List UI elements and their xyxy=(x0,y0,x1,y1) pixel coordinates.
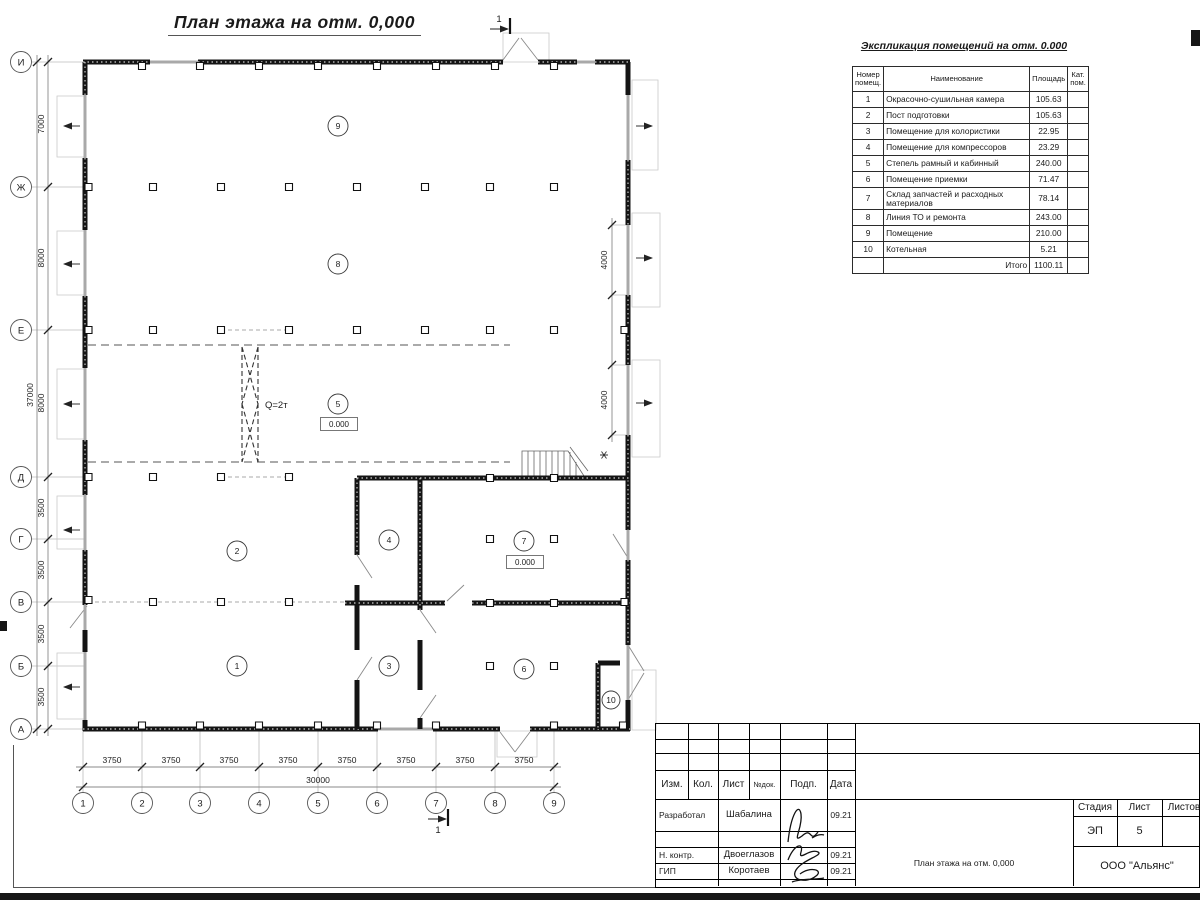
dim-bottom: 3750 xyxy=(515,755,534,765)
crane-capacity-label: Q=2т xyxy=(265,400,288,411)
cell-cat xyxy=(1068,242,1089,258)
tb-name: Двоеглазов xyxy=(718,847,780,863)
tb-col-izm: Изм. xyxy=(656,770,688,799)
table-row: 5 Степель рамный и кабинный 240.00 xyxy=(853,156,1089,172)
axis-row-label: В xyxy=(18,597,24,608)
cell-area: 210.00 xyxy=(1030,226,1068,242)
asterisk-symbol xyxy=(600,452,608,459)
dim-bottom: 3750 xyxy=(279,755,298,765)
room-number: 1 xyxy=(235,661,240,671)
crane-symbol xyxy=(242,347,258,462)
stairs xyxy=(522,447,588,476)
cell-area: 71.47 xyxy=(1030,172,1068,188)
dashed-lines xyxy=(88,330,510,602)
explication-header-row: Номер помещ. Наименование Площадь Кат. п… xyxy=(853,67,1089,92)
cell-cat xyxy=(1068,156,1089,172)
cell-area: 240.00 xyxy=(1030,156,1068,172)
dim-left: 7000 xyxy=(36,114,46,133)
cell-name: Пост подготовки xyxy=(884,108,1030,124)
dim-left: 3500 xyxy=(36,560,46,579)
sheet-frame-bottom xyxy=(13,887,655,888)
col-header-num: Номер помещ. xyxy=(853,67,884,92)
cell-num: 4 xyxy=(853,140,884,156)
room-number: 5 xyxy=(336,399,341,409)
dim-left-total: 37000 xyxy=(25,383,35,407)
scan-mark-right xyxy=(1191,30,1200,46)
table-row: 9 Помещение 210.00 xyxy=(853,226,1089,242)
elevation-value: 0.000 xyxy=(515,558,536,567)
axis-col-label: 1 xyxy=(80,798,85,809)
axis-col-label: 6 xyxy=(374,798,379,809)
axis-col-label: 3 xyxy=(197,798,202,809)
axis-row-label: Д xyxy=(18,472,25,483)
cell-cat xyxy=(1068,172,1089,188)
cell-area: 23.29 xyxy=(1030,140,1068,156)
cell-num: 2 xyxy=(853,108,884,124)
cell-name: Помещение xyxy=(884,226,1030,242)
section-label: 1 xyxy=(435,825,440,836)
axis-col-label: 7 xyxy=(433,798,438,809)
tb-stage-value: ЭП xyxy=(1073,816,1117,846)
dim-left: 3500 xyxy=(36,687,46,706)
table-row: 10 Котельная 5.21 xyxy=(853,242,1089,258)
elevation-marks: 0.000 0.000 xyxy=(321,418,544,569)
cell-name: Степель рамный и кабинный xyxy=(884,156,1030,172)
cell-num: 6 xyxy=(853,172,884,188)
axis-col-label: 9 xyxy=(551,798,556,809)
cell-num: 8 xyxy=(853,210,884,226)
cell-num: 1 xyxy=(853,92,884,108)
tb-sheet-value: 5 xyxy=(1117,816,1162,846)
axis-row-label: А xyxy=(18,724,25,735)
cell-area: 5.21 xyxy=(1030,242,1068,258)
table-row: 1 Окрасочно-сушильная камера 105.63 xyxy=(853,92,1089,108)
tb-doc-title: План этажа на отм. 0,000 xyxy=(855,799,1073,886)
cell-name: Окрасочно-сушильная камера xyxy=(884,92,1030,108)
dim-left: 8000 xyxy=(36,248,46,267)
tb-name: Шабалина xyxy=(718,799,780,831)
col-header-name: Наименование xyxy=(884,67,1030,92)
section-mark-top: 1 xyxy=(490,14,510,34)
room-number: 10 xyxy=(606,695,616,705)
tb-col-list: Лист xyxy=(718,770,749,799)
cell-cat xyxy=(1068,210,1089,226)
room-bubbles xyxy=(227,116,620,709)
cell-cat xyxy=(1068,124,1089,140)
table-row: 7 Склад запчастей и расходных материалов… xyxy=(853,188,1089,210)
axis-row-label: Б xyxy=(18,661,24,672)
cell-cat xyxy=(1068,188,1089,210)
tb-date: 09.21 xyxy=(827,799,855,831)
room-number: 4 xyxy=(387,535,392,545)
explication-table: Номер помещ. Наименование Площадь Кат. п… xyxy=(852,66,1089,274)
tb-role: Н. контр. xyxy=(659,847,719,863)
cell-area: 105.63 xyxy=(1030,92,1068,108)
cell-name: Линия ТО и ремонта xyxy=(884,210,1030,226)
tb-role: Разработал xyxy=(659,799,719,831)
axis-row-label: Е xyxy=(18,325,24,336)
tb-stage-label: Стадия xyxy=(1073,799,1117,816)
cell-name: Котельная xyxy=(884,242,1030,258)
explication-title: Экспликация помещений на отм. 0.000 xyxy=(846,40,1082,52)
cell-num: 7 xyxy=(853,188,884,210)
dim-left: 8000 xyxy=(36,393,46,412)
dim-left: 3500 xyxy=(36,498,46,517)
table-total-row: Итого 1100.11 xyxy=(853,258,1089,274)
cell-cat xyxy=(1068,258,1089,274)
cell-area: 78.14 xyxy=(1030,188,1068,210)
room-number: 6 xyxy=(522,664,527,674)
tb-col-data: Дата xyxy=(827,770,855,799)
dim-bottom: 3750 xyxy=(162,755,181,765)
tb-name: Коротаев xyxy=(718,863,780,879)
tb-col-doc: №док. xyxy=(749,770,780,799)
cell-area: 22.95 xyxy=(1030,124,1068,140)
cell-num xyxy=(853,258,884,274)
elevation-value: 0.000 xyxy=(329,420,350,429)
axis-row-label: И xyxy=(18,57,25,68)
axis-col-label: 4 xyxy=(256,798,261,809)
dim-left: 3500 xyxy=(36,624,46,643)
drawing-sheet: 1 1 И Ж Е Д Г В Б А xyxy=(0,0,1200,900)
dim-bottom: 3750 xyxy=(220,755,239,765)
cell-num: 3 xyxy=(853,124,884,140)
table-row: 8 Линия ТО и ремонта 243.00 xyxy=(853,210,1089,226)
tb-company: ООО "Альянс" xyxy=(1073,846,1200,886)
tb-role: ГИП xyxy=(659,863,719,879)
section-label: 1 xyxy=(496,14,501,25)
room-number: 3 xyxy=(387,661,392,671)
dim-bottom: 3750 xyxy=(338,755,357,765)
tb-col-podp: Подп. xyxy=(780,770,827,799)
col-header-cat: Кат. пом. xyxy=(1068,67,1089,92)
room-number: 9 xyxy=(336,121,341,131)
cell-cat xyxy=(1068,92,1089,108)
tb-sheet-label: Лист xyxy=(1117,799,1162,816)
dim-bottom-total: 30000 xyxy=(306,775,330,785)
cell-name: Помещение для компрессоров xyxy=(884,140,1030,156)
total-label: Итого xyxy=(884,258,1030,274)
title-block: Изм. Кол. Лист №док. Подп. Дата Разработ… xyxy=(655,723,1200,888)
table-row: 2 Пост подготовки 105.63 xyxy=(853,108,1089,124)
axis-row-label: Ж xyxy=(17,182,26,193)
cell-num: 10 xyxy=(853,242,884,258)
page-title: План этажа на отм. 0,000 xyxy=(168,12,421,36)
axis-col-label: 5 xyxy=(315,798,320,809)
axis-col-label: 8 xyxy=(492,798,497,809)
table-row: 6 Помещение приемки 71.47 xyxy=(853,172,1089,188)
cell-name: Склад запчастей и расходных материалов xyxy=(884,188,1030,210)
signature xyxy=(782,840,828,886)
sheet-edge-strip xyxy=(0,893,1200,900)
table-row: 3 Помещение для колористики 22.95 xyxy=(853,124,1089,140)
cell-name: Помещение для колористики xyxy=(884,124,1030,140)
dim-right: 4000 xyxy=(599,250,609,269)
total-value: 1100.11 xyxy=(1030,258,1068,274)
tb-date: 09.21 xyxy=(827,863,855,879)
dim-bottom: 3750 xyxy=(456,755,475,765)
cell-name: Помещение приемки xyxy=(884,172,1030,188)
dimension-labels: 7000 8000 8000 3500 3500 3500 3500 37000… xyxy=(25,114,609,785)
room-number: 2 xyxy=(235,546,240,556)
cell-cat xyxy=(1068,108,1089,124)
scan-mark-left xyxy=(0,621,7,631)
dim-right: 4000 xyxy=(599,390,609,409)
tb-date: 09.21 xyxy=(827,847,855,863)
axis-col-label: 2 xyxy=(139,798,144,809)
cell-area: 243.00 xyxy=(1030,210,1068,226)
sheet-frame-left xyxy=(13,745,14,888)
room-number: 7 xyxy=(522,536,527,546)
cell-num: 9 xyxy=(853,226,884,242)
room-number: 8 xyxy=(336,259,341,269)
tb-col-kol: Кол. xyxy=(688,770,718,799)
cell-area: 105.63 xyxy=(1030,108,1068,124)
dim-bottom: 3750 xyxy=(397,755,416,765)
col-header-area: Площадь xyxy=(1030,67,1068,92)
cell-cat xyxy=(1068,140,1089,156)
cell-cat xyxy=(1068,226,1089,242)
cell-num: 5 xyxy=(853,156,884,172)
axis-row-label: Г xyxy=(18,534,23,545)
tb-sheets-label: Листов xyxy=(1162,799,1200,816)
table-row: 4 Помещение для компрессоров 23.29 xyxy=(853,140,1089,156)
dim-bottom: 3750 xyxy=(103,755,122,765)
